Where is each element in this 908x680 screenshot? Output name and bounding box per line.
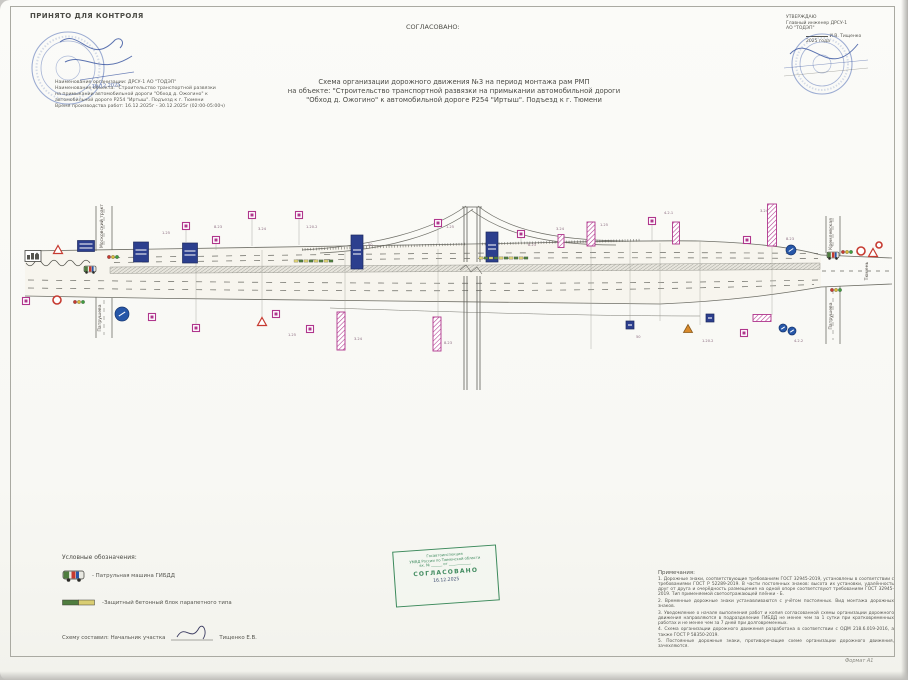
traffic-sign-blue-board [351,235,363,269]
traffic-sign-m-board [673,222,680,244]
note-item: 5. Постоянные дорожные знаки, противореч… [658,639,894,649]
traffic-sign-car [827,252,839,260]
title-line-1: Схема организации дорожного движения №3 … [154,78,754,87]
note-item: 1. Дорожные знаки, соответствующие требо… [658,577,894,597]
traffic-sign-triangle [54,246,63,254]
blue-round-stamp-right [770,20,888,104]
protective-block-segment [494,257,498,259]
protective-block-segment [309,260,313,262]
traffic-sign-m-sq [649,218,656,242]
protective-block-segment [294,260,298,262]
traffic-sign-blue-sq [706,314,714,322]
sign-code-label: 1.25 [600,223,608,227]
drawing-title: Схема организации дорожного движения №3 … [154,78,754,104]
sign-code-label: 4.2.1 [664,211,673,215]
legend-item-patrol-car: - Патрульная машина ГИБДД [62,569,257,582]
sign-code-label: 8.23 [214,225,222,229]
protective-block-segment [319,260,323,262]
traffic-sign-blue-circle [115,307,129,321]
protective-block-segment [514,257,518,259]
traffic-sign-tl [107,255,118,258]
legend-item-label: -Защитный бетонный блок парапетного типа [102,600,232,606]
legend-item-label: - Патрульная машина ГИБДД [92,573,175,579]
legend-title: Условные обозначения: [62,554,257,561]
protective-block-segment [479,257,483,259]
patrol-car-icon [62,569,86,582]
traffic-sign-blue-sq [626,321,634,329]
traffic-sign-m-board [558,235,564,248]
protective-block-segment [499,257,503,259]
traffic-sign-m-board [587,222,595,246]
sign-code-label: 1.25 [288,333,296,337]
traffic-sign-orange-triangle [684,325,693,333]
street-label: Тюмень [864,261,870,281]
traffic-sign-m-sq [23,298,30,305]
sign-code-label: 3.24 [556,227,565,231]
traffic-sign-m-board [337,312,345,350]
note-item: 3. Уведомление о начале выполнения работ… [658,611,894,626]
scan-edge-right [901,0,908,680]
scanned-sheet: Московский трактПатрушеваКремлевскаяПатр… [0,0,908,680]
title-line-2: на объекте: "Строительство транспортной … [154,87,754,96]
protective-block-segment [504,257,508,259]
notes-title: Примечания: [658,571,894,576]
accepted-for-control-label: ПРИНЯТО ДЛЯ КОНТРОЛЯ [30,12,144,20]
traffic-sign-tl [830,288,841,291]
info-line: Время производства работ: 16.12.2025г - … [55,104,225,110]
traffic-sign-m-sq [296,212,303,246]
format-label: Формат А1 [845,658,873,664]
protective-block-segment [304,260,308,262]
sign-code-label: 50 [636,335,641,339]
traffic-sign-tl [73,300,84,303]
traffic-sign-blue-board [78,241,95,252]
traffic-sign-m-sq [741,330,748,337]
traffic-sign-m-board [768,204,777,246]
sign-code-label: 8.23 [444,341,452,345]
traffic-sign-m-board [433,317,441,351]
protective-block-segment [509,257,513,259]
protective-block-icon [62,598,96,607]
scan-edge-bottom [0,671,908,680]
protective-block-segment [299,260,303,262]
traffic-sign-blue-circle [788,327,796,335]
notes-block: Примечания: 1. Дорожные знаки, соответст… [658,571,894,651]
traffic-sign-blue-board [134,242,149,262]
sign-code-label: 1.25 [446,225,454,229]
composer-row: Схему составил: Начальник участка Тищенк… [62,619,257,641]
protective-block-segment [314,260,318,262]
street-label: Кремлевская [828,218,834,250]
traffic-sign-red-circle [53,296,61,304]
traffic-sign-triangle [869,249,878,257]
gibdd-agreed-stamp: Госавтоинспекция УМВД России по Тюменско… [392,544,500,607]
sign-code-label: 8.23 [528,243,536,247]
traffic-sign-blue-circle [786,245,796,255]
traffic-sign-m-sq [744,237,751,244]
traffic-sign-m-sq [518,231,525,244]
traffic-sign-red-circle [857,247,865,255]
composer-signature [169,623,215,645]
traffic-sign-m-rect [753,315,771,322]
sign-code-label: 50 [368,243,373,247]
protective-block-segment [324,260,328,262]
traffic-sign-m-sq [435,220,442,246]
protective-block-segment [484,257,488,259]
sign-code-label: 3.24 [258,227,267,231]
protective-block-segment [519,257,523,259]
traffic-sign-m-sq [273,311,280,318]
legend-item-protective-block: -Защитный бетонный блок парапетного типа [62,598,257,607]
title-line-3: "Обход д. Ожогино" к автомобильной дорог… [154,96,754,105]
street-label: Патрушева [828,302,834,329]
sign-code-label: 1.25 [162,231,170,235]
sign-code-label: 3.24 [760,209,769,213]
sign-code-label: 8.23 [786,237,794,241]
traffic-sign-triangle [258,318,267,326]
agreed-label: СОГЛАСОВАНО: [406,23,460,31]
traffic-sign-red-circle [876,242,882,248]
traffic-sign-blue-circle [779,324,787,332]
composer-name: Тищенко Е.В. [219,635,257,641]
sign-code-label: 1.20.2 [702,339,713,343]
traffic-sign-m-sq [183,223,190,243]
sign-code-label: 4.2.2 [794,339,803,343]
traffic-sign-blue-board [183,243,198,263]
traffic-sign-m-sq [307,326,314,333]
composer-prefix: Схему составил: Начальник участка [62,635,165,641]
traffic-sign-m-sq [149,314,156,321]
traffic-sign-m-sq [249,212,256,247]
sign-code-label: 1.20.2 [306,225,317,229]
traffic-sign-tl [841,250,852,253]
street-label: Патрушева [97,304,103,331]
road-base [25,206,892,390]
note-item: 2. Временные дорожные знаки устанавливаю… [658,599,894,609]
protective-block-segment [329,260,333,262]
traffic-sign-m-sq [193,325,200,332]
street-label: Московский тракт [98,204,105,249]
protective-block-segment [489,257,493,259]
legend: Условные обозначения: - Патрульная машин… [62,554,257,641]
note-item: 4. Схема организации дорожного движения … [658,627,894,637]
protective-block-segment [524,257,528,259]
sign-code-label: 3.24 [354,337,363,341]
traffic-sign-city [25,251,41,262]
